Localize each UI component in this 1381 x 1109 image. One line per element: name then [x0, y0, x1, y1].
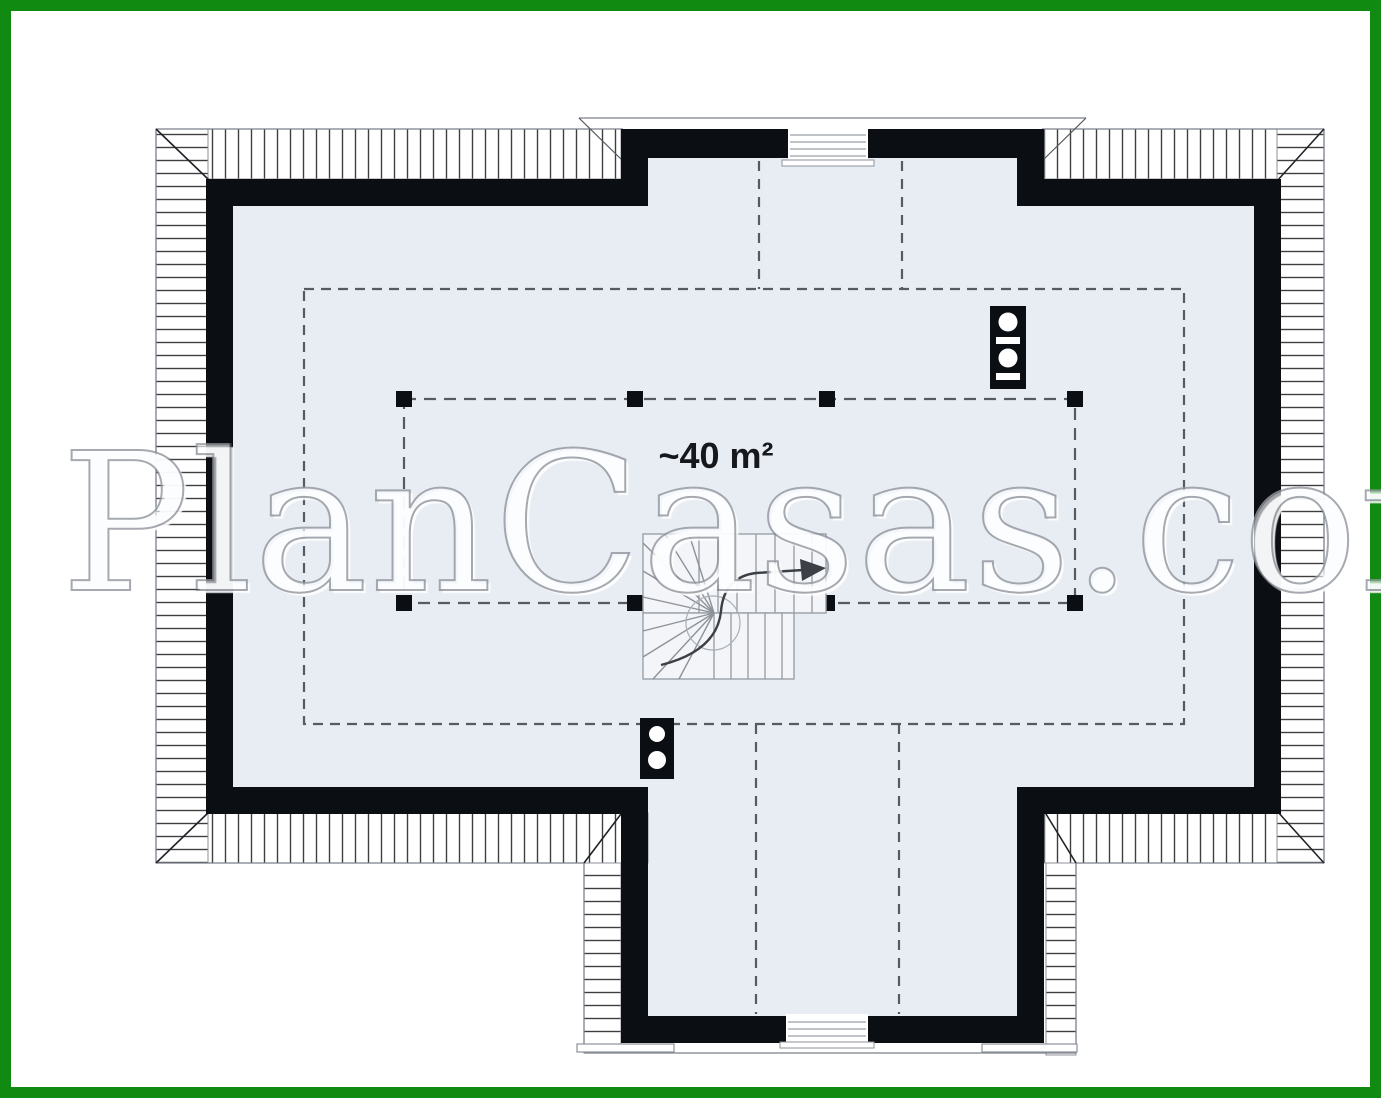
- roof-band-top-left: [208, 129, 621, 179]
- wall-left: [206, 179, 233, 814]
- stair-upper-flight: [643, 534, 826, 613]
- roof-band-bottom-right: [1044, 813, 1277, 863]
- window-sill-right: [982, 1044, 1077, 1052]
- roof-band-dormer-right: [1046, 863, 1076, 1055]
- window-sill-left: [577, 1044, 674, 1052]
- wall-top-right: [1017, 179, 1281, 206]
- post-marker: [819, 391, 835, 407]
- roof-band-top-right: [1044, 129, 1277, 179]
- floor-bottom-dormer: [646, 789, 1019, 1019]
- attic-floor-plan: PlanCasas.com ~40 m²: [11, 11, 1370, 1087]
- area-label: ~40 m²: [613, 435, 819, 477]
- post-marker: [627, 595, 643, 611]
- post-marker: [396, 391, 412, 407]
- roof-window-symbol-top: [782, 127, 874, 166]
- wall-top-left: [206, 179, 648, 206]
- floor-main: [231, 204, 1256, 789]
- wall-bottom-dormer-left: [621, 787, 648, 1043]
- roof-band-right: [1277, 129, 1324, 863]
- wall-bottom-dormer-right: [1017, 787, 1044, 1043]
- roof-band-bottom-left: [208, 813, 648, 863]
- green-photo-frame: PlanCasas.com ~40 m²: [0, 0, 1381, 1098]
- post-marker: [627, 391, 643, 407]
- post-marker: [1067, 595, 1083, 611]
- wall-right: [1254, 179, 1281, 814]
- post-marker: [396, 595, 412, 611]
- wall-bottom-right: [1017, 787, 1281, 814]
- post-marker: [1067, 391, 1083, 407]
- roof-window-symbol-bottom: [780, 1014, 874, 1048]
- roof-band-dormer-left: [584, 863, 621, 1053]
- chimney-symbol-bottom: [640, 718, 674, 779]
- roof-band-left: [156, 129, 208, 863]
- wall-bottom-left: [206, 787, 648, 814]
- chimney-symbol-right: [990, 306, 1026, 389]
- floorplan-svg: [11, 11, 1381, 1109]
